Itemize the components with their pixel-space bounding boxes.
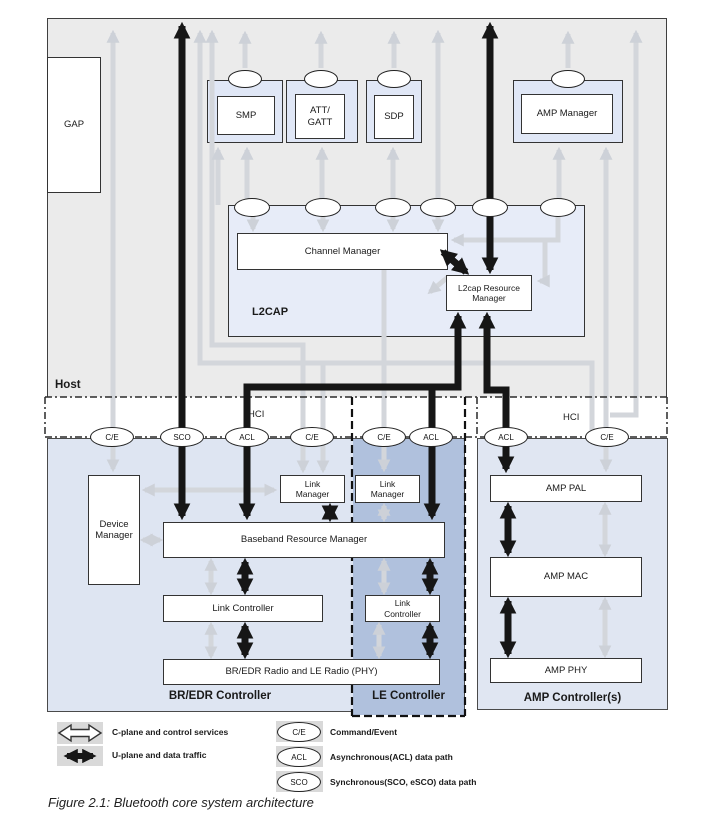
legend-u-plane-label: U-plane and data traffic	[112, 750, 206, 760]
device-manager-label: Device Manager	[92, 519, 136, 541]
device-manager-box: Device Manager	[88, 475, 140, 585]
baseband-resource-manager-box: Baseband Resource Manager	[163, 522, 445, 558]
hci-oval-ce: C/E	[585, 427, 629, 447]
hci-oval-label: C/E	[600, 433, 613, 442]
legend-acl-oval-label: ACL	[291, 753, 307, 762]
legend-acl-oval: ACL	[277, 747, 321, 767]
gap-label: GAP	[64, 119, 84, 130]
legend-sco-label: Synchronous(SCO, eSCO) data path	[330, 777, 476, 787]
amp-phy-box: AMP PHY	[490, 658, 642, 683]
att-gatt-label: ATT/ GATT	[308, 105, 333, 127]
amp-mac-label: AMP MAC	[544, 571, 588, 582]
legend-sco-oval-label: SCO	[290, 778, 307, 787]
l2cap-oval	[472, 198, 508, 217]
l2cap-resource-manager-box: L2cap Resource Manager	[446, 275, 532, 311]
hci-label-left: HCI	[248, 409, 264, 420]
channel-manager-label: Channel Manager	[305, 246, 381, 257]
channel-manager-box: Channel Manager	[237, 233, 448, 270]
hci-oval-label: SCO	[173, 433, 190, 442]
hci-oval-label: C/E	[377, 433, 390, 442]
legend-ce-oval: C/E	[277, 722, 321, 742]
att-gatt-box: ATT/ GATT	[295, 94, 345, 139]
att-gatt-oval	[304, 70, 338, 88]
link-manager-le-box: Link Manager	[355, 475, 420, 503]
hci-oval-acl: ACL	[225, 427, 269, 447]
sdp-box: SDP	[374, 95, 414, 139]
amp-manager-box: AMP Manager	[521, 94, 613, 134]
sdp-label: SDP	[384, 111, 404, 122]
link-controller-bredr-label: Link Controller	[212, 603, 273, 614]
hci-oval-label: C/E	[305, 433, 318, 442]
smp-box: SMP	[217, 96, 275, 135]
amp-pal-box: AMP PAL	[490, 475, 642, 502]
link-manager-bredr-box: Link Manager	[280, 475, 345, 503]
hci-oval-ce: C/E	[90, 427, 134, 447]
l2cap-oval	[420, 198, 456, 217]
le-controller-label: LE Controller	[352, 690, 465, 702]
figure-caption: Figure 2.1: Bluetooth core system archit…	[48, 795, 314, 810]
amp-manager-oval	[551, 70, 585, 88]
hci-oval-sco: SCO	[160, 427, 204, 447]
legend-sco-oval: SCO	[277, 772, 321, 792]
baseband-resource-manager-label: Baseband Resource Manager	[241, 534, 367, 545]
link-manager-le-label: Link Manager	[364, 479, 411, 499]
l2cap-oval	[375, 198, 411, 217]
l2cap-label: L2CAP	[252, 306, 288, 318]
radio-phy-box: BR/EDR Radio and LE Radio (PHY)	[163, 659, 440, 685]
amp-controller-label: AMP Controller(s)	[477, 692, 668, 704]
link-controller-bredr-box: Link Controller	[163, 595, 323, 622]
amp-manager-label: AMP Manager	[537, 108, 598, 119]
l2cap-oval	[234, 198, 270, 217]
hci-oval-ce: C/E	[290, 427, 334, 447]
hci-oval-label: C/E	[105, 433, 118, 442]
legend-acl-label: Asynchronous(ACL) data path	[330, 752, 453, 762]
amp-phy-label: AMP PHY	[545, 665, 588, 676]
legend-c-plane-label: C-plane and control services	[112, 727, 228, 737]
smp-label: SMP	[236, 110, 257, 121]
hci-oval-ce: C/E	[362, 427, 406, 447]
amp-pal-label: AMP PAL	[546, 483, 586, 494]
hci-oval-label: ACL	[239, 433, 255, 442]
hci-oval-label: ACL	[498, 433, 514, 442]
link-controller-le-box: Link Controller	[365, 595, 440, 622]
hci-label-right: HCI	[563, 412, 579, 423]
gap-box: GAP	[47, 57, 101, 193]
legend-ce-label: Command/Event	[330, 727, 397, 737]
sdp-oval	[377, 70, 411, 88]
legend-icon-bg	[57, 746, 103, 766]
host-label: Host	[55, 379, 81, 391]
smp-oval	[228, 70, 262, 88]
hci-oval-acl: ACL	[484, 427, 528, 447]
l2cap-oval	[540, 198, 576, 217]
amp-mac-box: AMP MAC	[490, 557, 642, 597]
l2cap-resource-manager-label: L2cap Resource Manager	[451, 283, 527, 303]
hci-oval-label: ACL	[423, 433, 439, 442]
l2cap-oval	[305, 198, 341, 217]
link-manager-bredr-label: Link Manager	[289, 479, 336, 499]
link-controller-le-label: Link Controller	[384, 598, 421, 618]
bredr-controller-label: BR/EDR Controller	[120, 690, 320, 702]
legend-ce-oval-label: C/E	[292, 728, 305, 737]
radio-phy-label: BR/EDR Radio and LE Radio (PHY)	[225, 666, 377, 677]
bluetooth-architecture-figure: GAP SMP ATT/ GATT SDP AMP Manager Channe…	[0, 0, 712, 827]
hci-oval-acl: ACL	[409, 427, 453, 447]
legend-icon-bg	[57, 722, 103, 744]
